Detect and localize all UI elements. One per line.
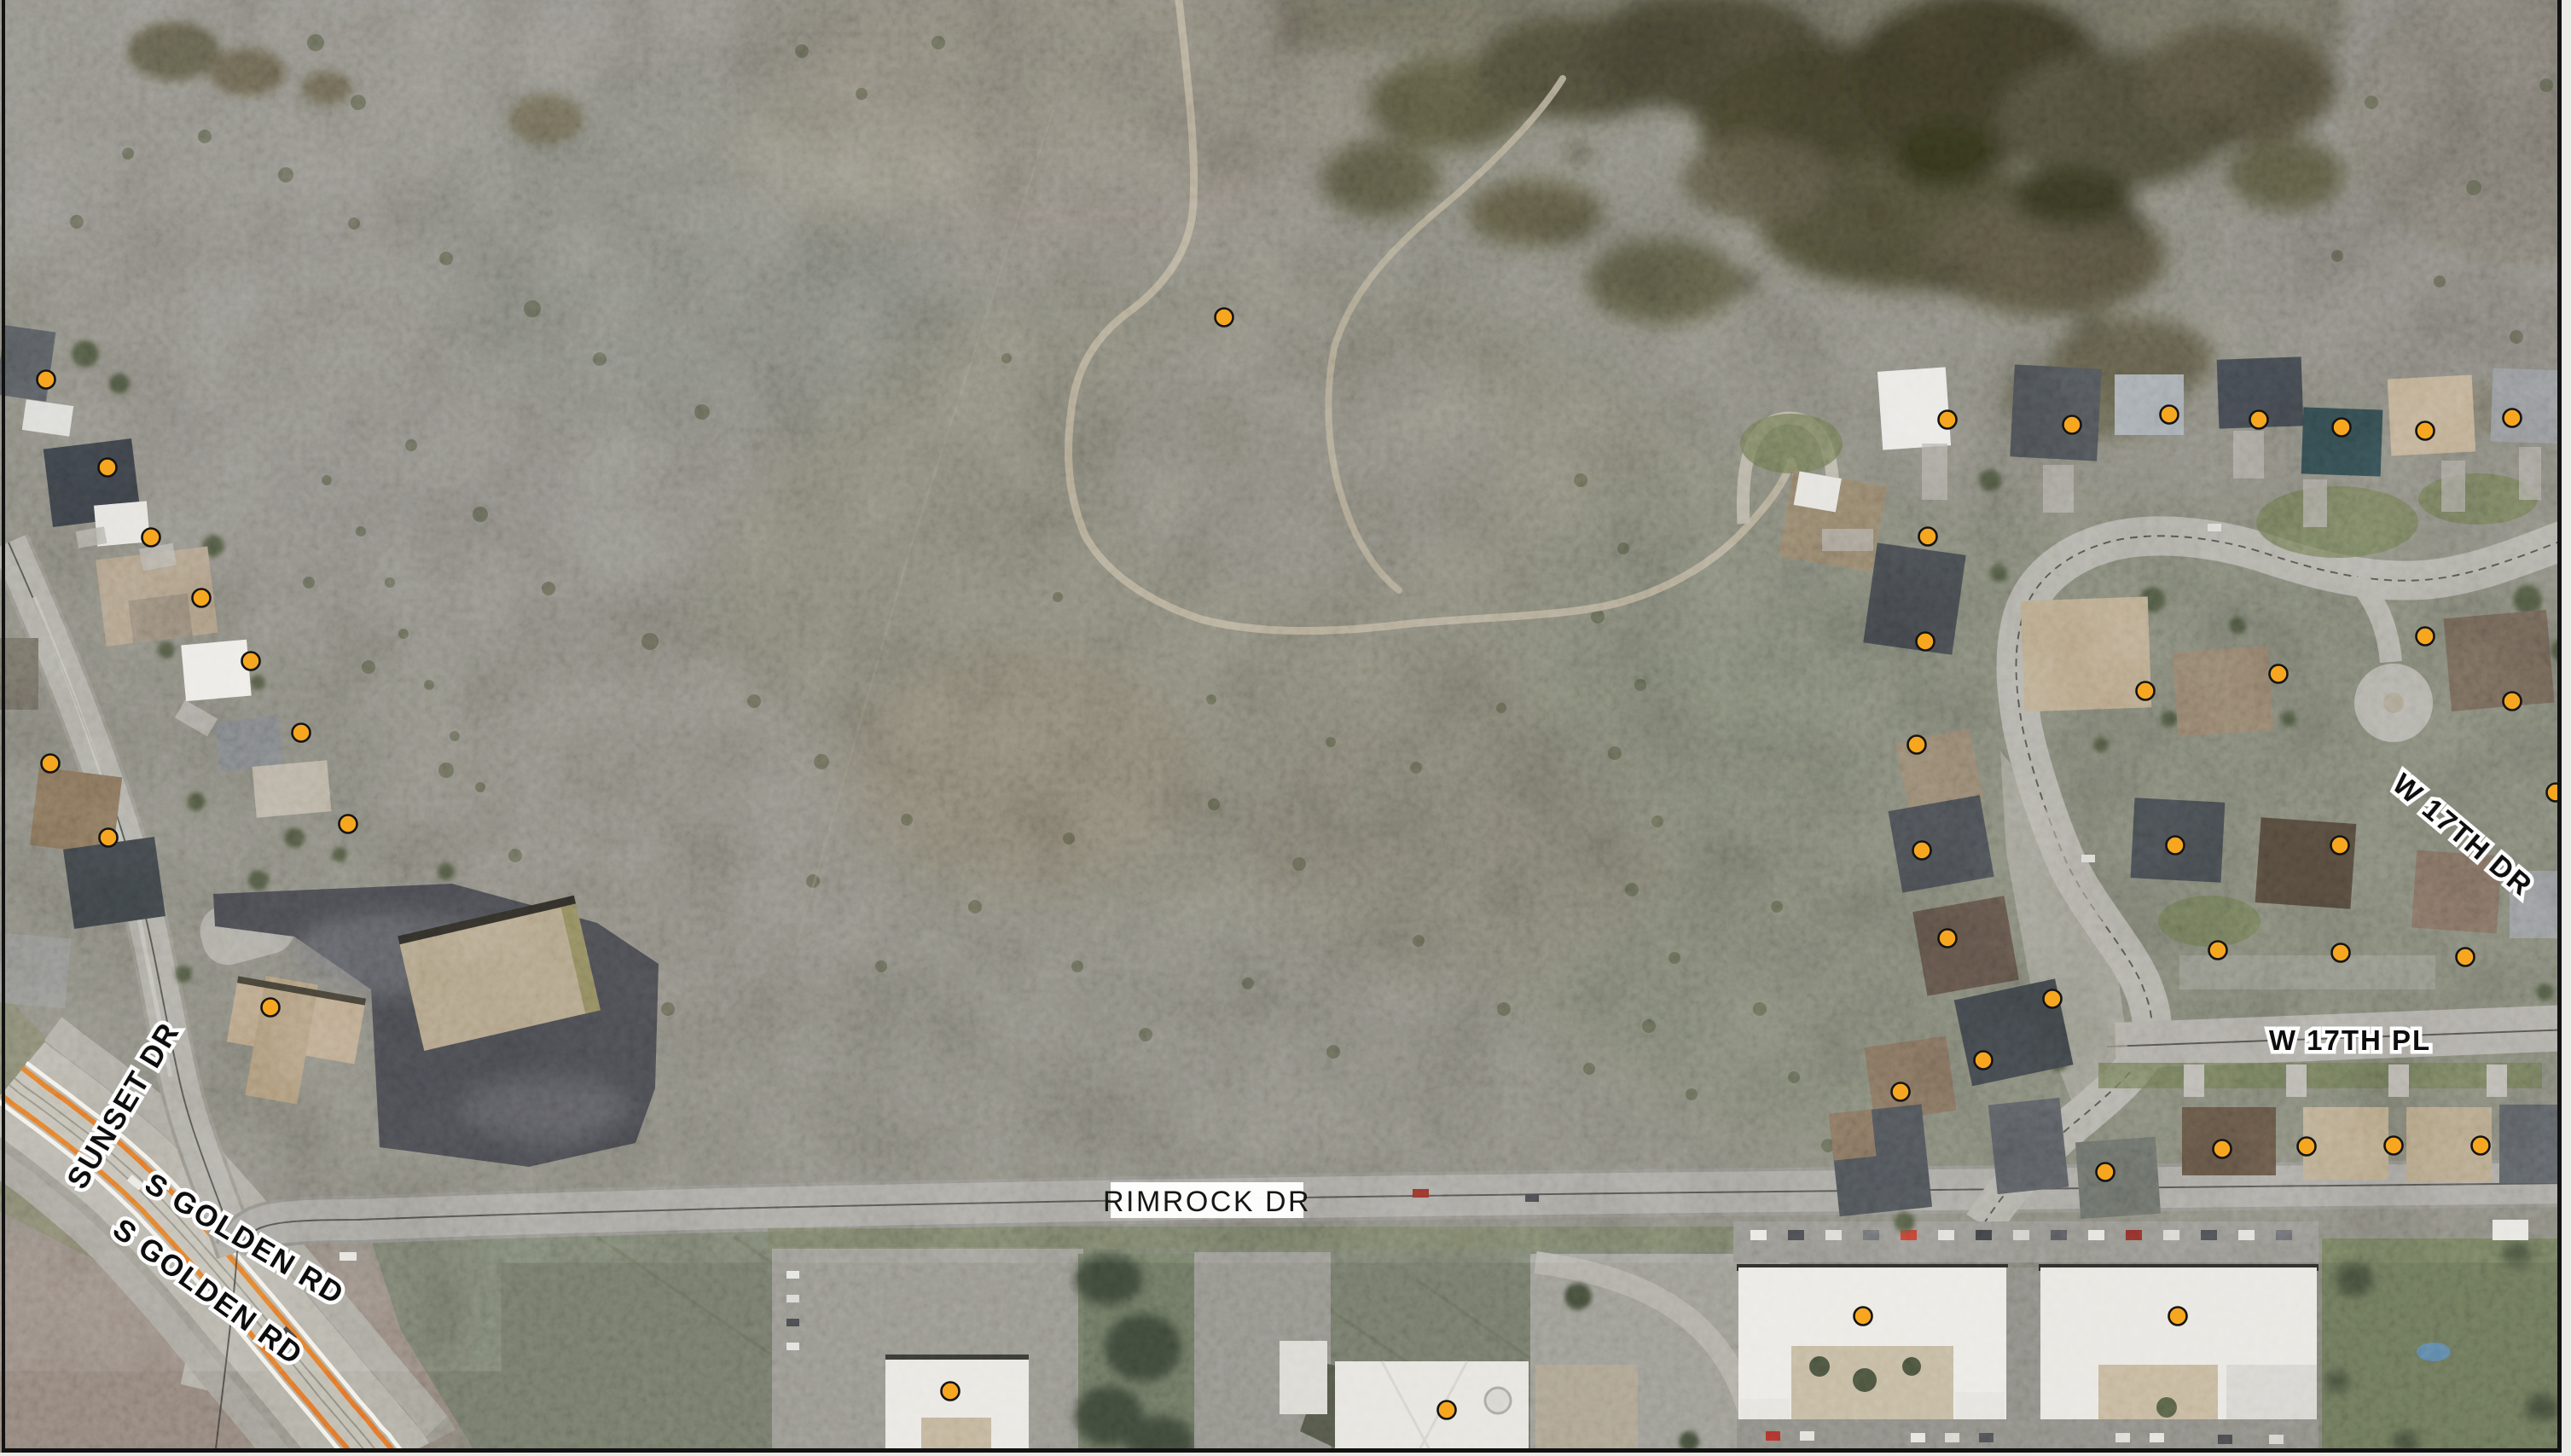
svg-text:RIMROCK DR: RIMROCK DR	[1103, 1186, 1311, 1218]
svg-text:W 17TH PL: W 17TH PL	[2269, 1024, 2431, 1056]
